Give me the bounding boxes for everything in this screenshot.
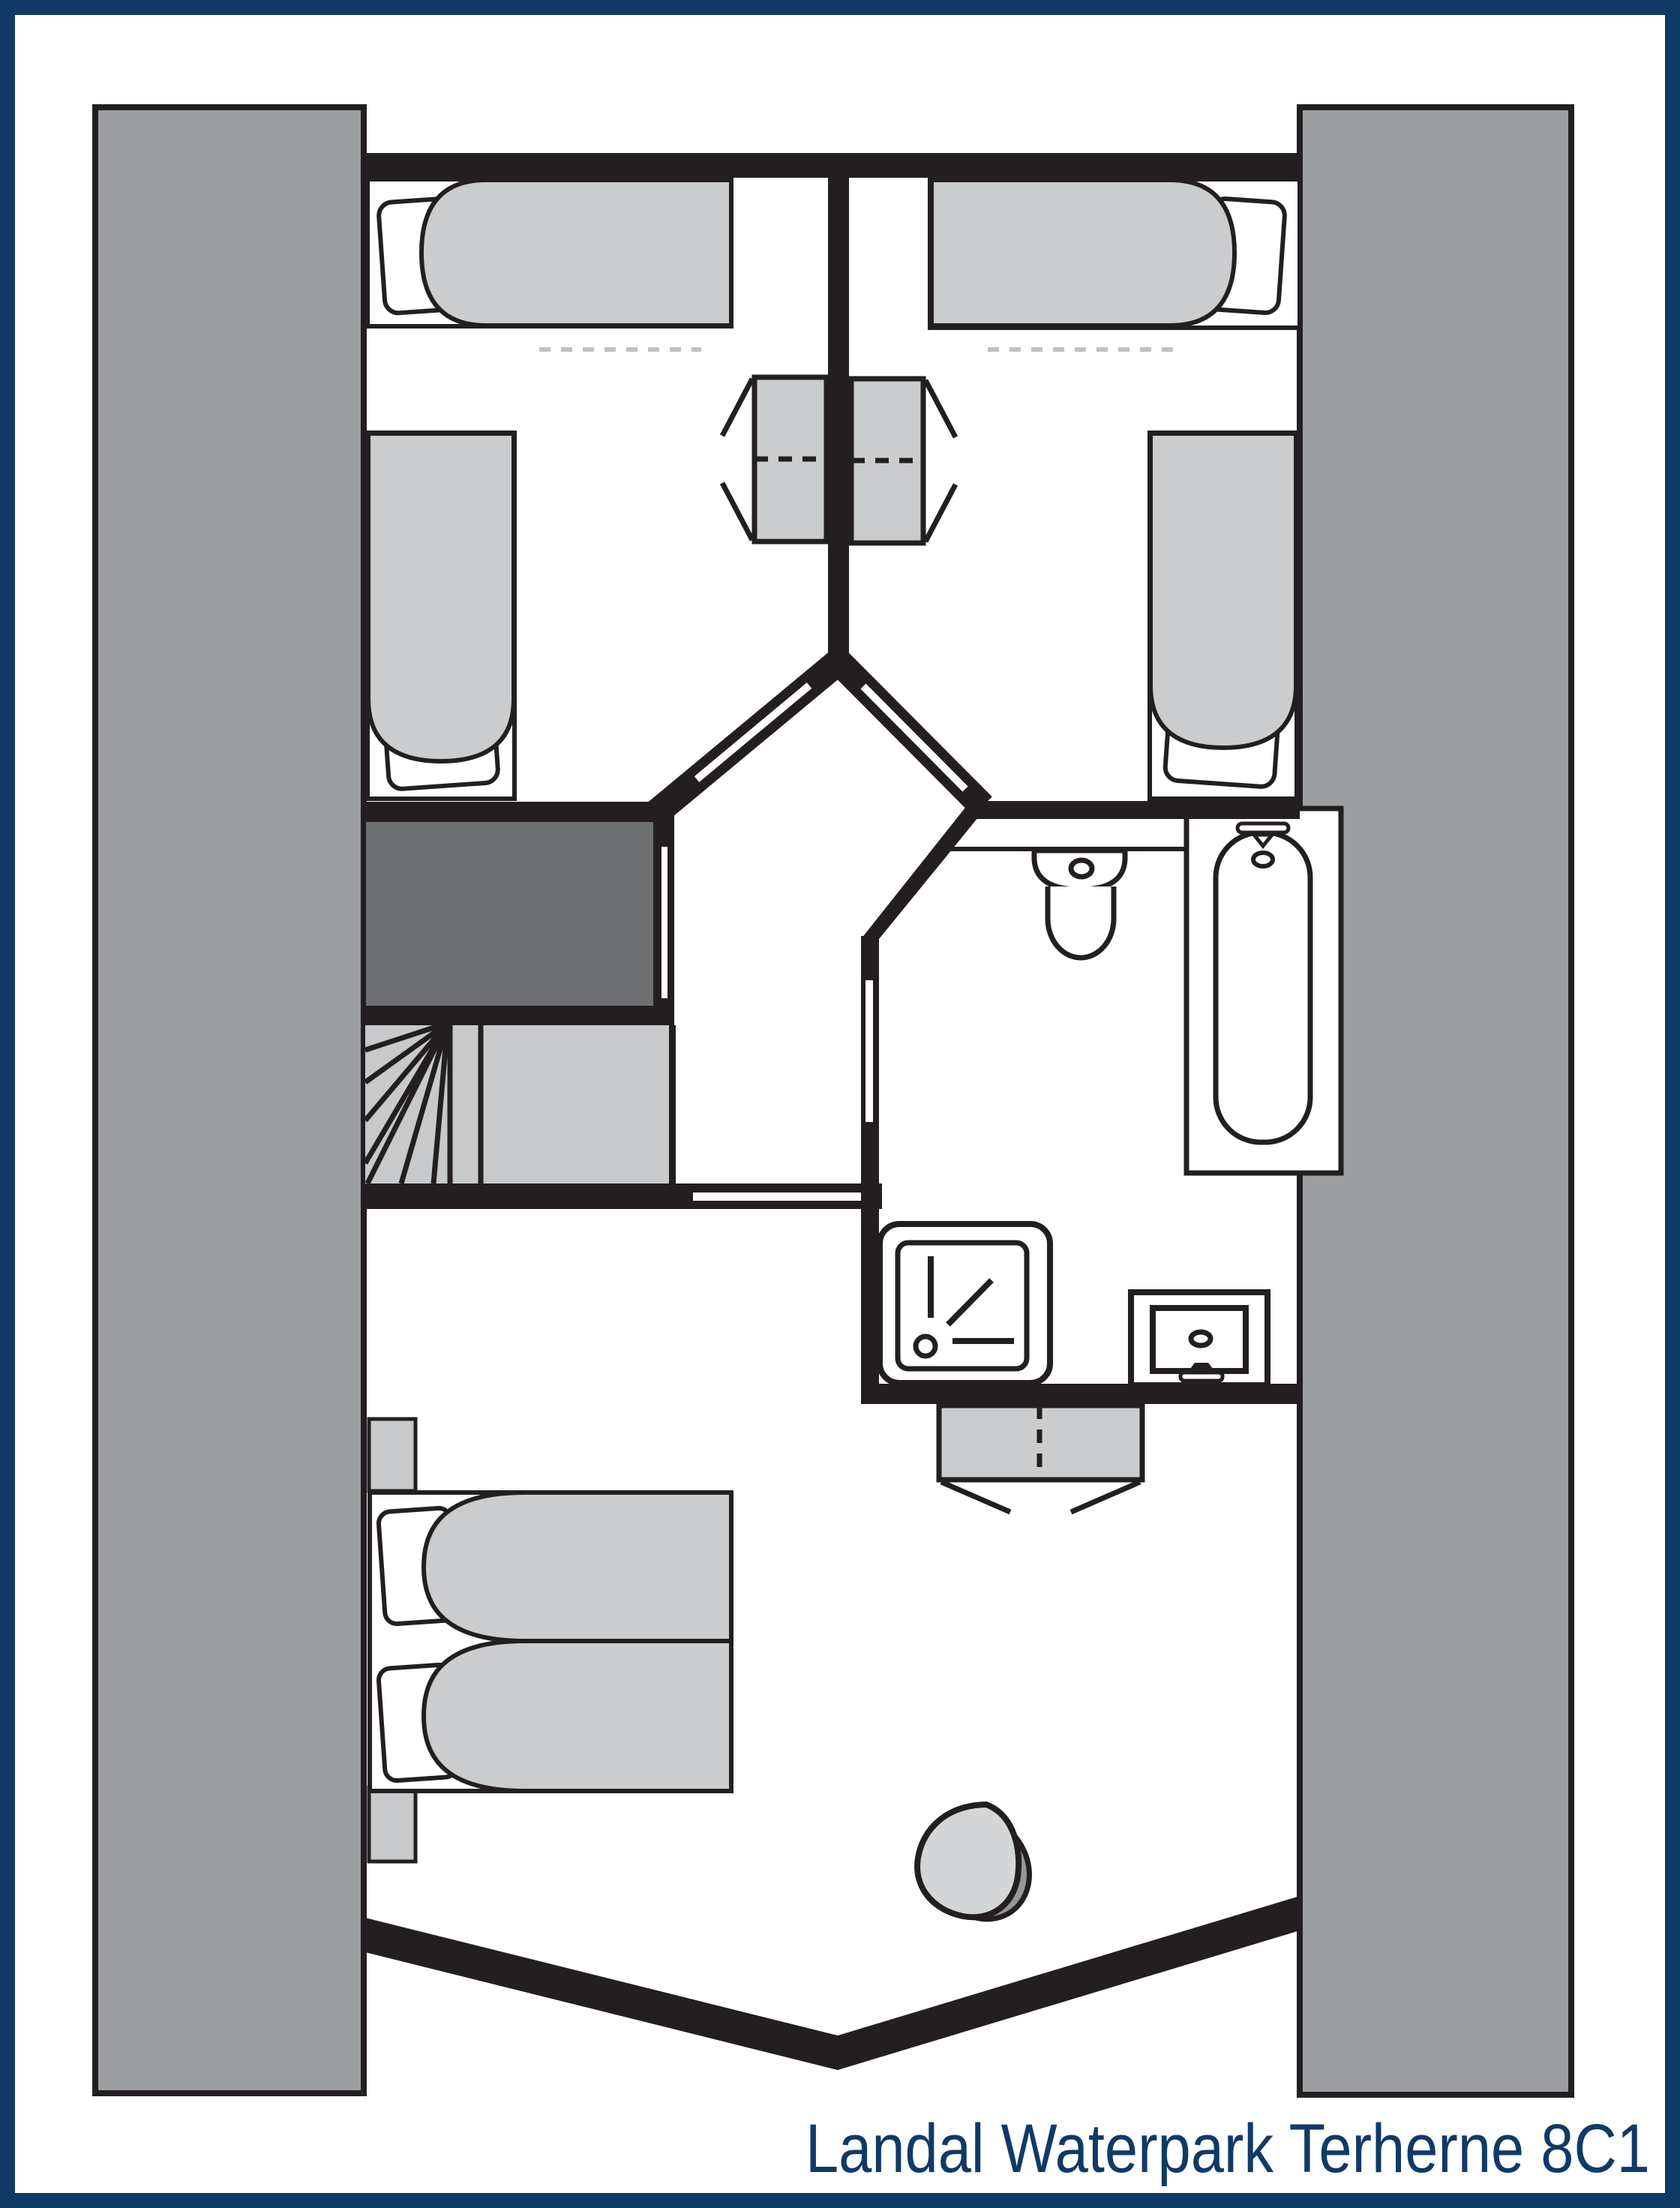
svg-text:Landal Waterpark Terherne 8C1: Landal Waterpark Terherne 8C1	[805, 2110, 1650, 2187]
